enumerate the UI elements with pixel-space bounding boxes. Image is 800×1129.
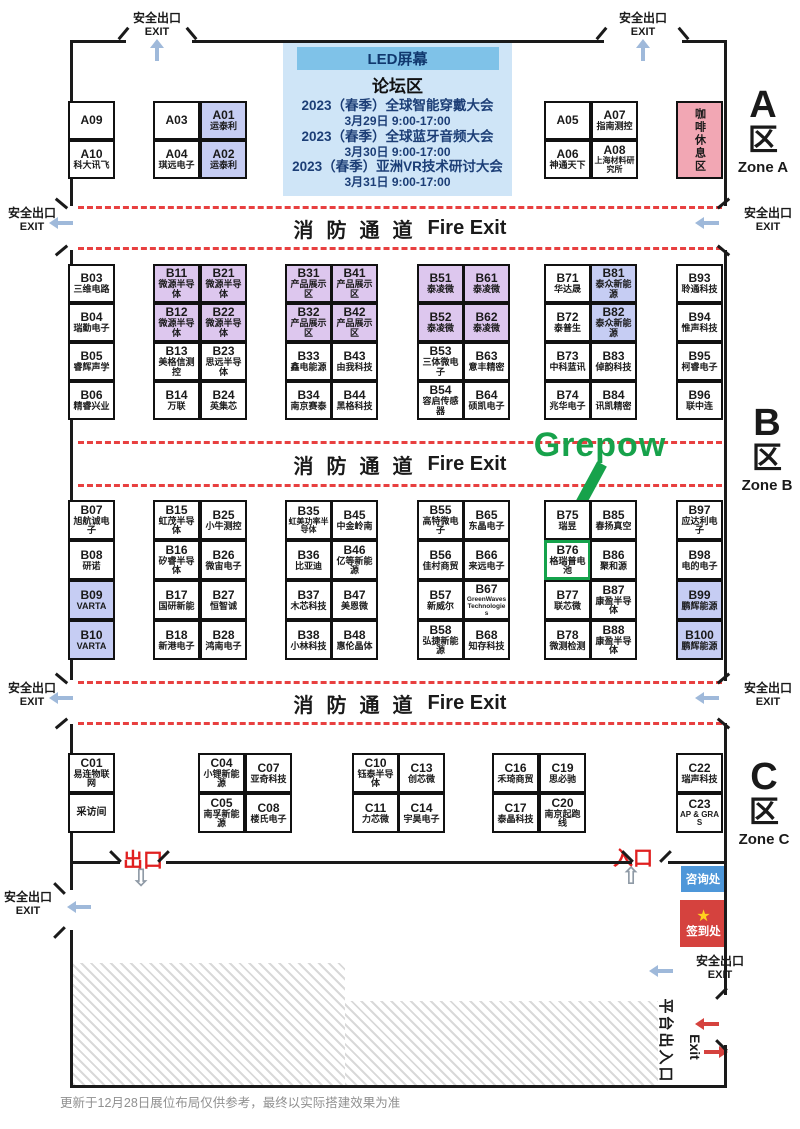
booth-id: C16 bbox=[504, 762, 526, 775]
door-tick bbox=[55, 718, 68, 730]
booth-B71: B71华达晟 bbox=[544, 264, 591, 303]
booth-A01: A01运泰利 bbox=[200, 101, 247, 140]
booth-company: 微源半导体 bbox=[156, 319, 197, 338]
booth-company: 南京起跑线 bbox=[542, 810, 583, 829]
booth-company: 应达利电子 bbox=[679, 517, 720, 536]
booth-company: 意丰精密 bbox=[468, 363, 504, 373]
booth-company: 东晶电子 bbox=[468, 522, 504, 532]
booth-id: B18 bbox=[165, 629, 187, 642]
booth-id: B99 bbox=[688, 589, 710, 602]
booth-C07: C07亚奇科技 bbox=[245, 753, 292, 793]
booth-company: 来远电子 bbox=[468, 562, 504, 572]
booth-id: B57 bbox=[429, 589, 451, 602]
booth-C08: C08楼氏电子 bbox=[245, 793, 292, 833]
fire-lane-3: 消防通道 Fire Exit bbox=[78, 681, 722, 725]
booth-company: 思必驰 bbox=[549, 775, 576, 785]
booth-company: 三维电路 bbox=[73, 285, 109, 295]
booth-id: B76 bbox=[556, 544, 578, 557]
booth-id: B37 bbox=[297, 589, 319, 602]
zone-a-label: A 区 Zone A bbox=[732, 86, 794, 175]
booth-company: 瑞勤电子 bbox=[73, 324, 109, 334]
booth-B82: B82泰众新能源 bbox=[590, 303, 637, 342]
exit-direction-arrow bbox=[58, 696, 73, 700]
booth-id: B27 bbox=[212, 589, 234, 602]
booth-B61: B61泰凌微 bbox=[463, 264, 510, 303]
booth-company: 兆华电子 bbox=[549, 402, 585, 412]
booth-company: 微源半导体 bbox=[156, 280, 197, 299]
info-desk: 咨询处 bbox=[681, 866, 725, 892]
booth-company: 电的电子 bbox=[681, 562, 717, 572]
booth-B03: B03三维电路 bbox=[68, 264, 115, 303]
entrance-up-arrow: ⇧ bbox=[621, 862, 641, 891]
safety-exit-sign: 安全出口EXIT bbox=[0, 891, 56, 917]
booth-B04: B04瑞勤电子 bbox=[68, 303, 115, 342]
booth-id: C10 bbox=[364, 757, 386, 770]
booth-company: 黑格科技 bbox=[336, 402, 372, 412]
booth-company: 康盈半导体 bbox=[593, 637, 634, 656]
safety-exit-cn: 安全出口 bbox=[692, 955, 748, 969]
booth-A07: A07指南测控 bbox=[591, 101, 638, 140]
booth-B25: B25小牛测控 bbox=[200, 500, 247, 540]
booth-company: 力芯微 bbox=[362, 815, 389, 825]
booth-B96: B96联中连 bbox=[676, 381, 723, 420]
booth-id: C07 bbox=[257, 762, 279, 775]
booth-id: B56 bbox=[429, 549, 451, 562]
booth-B06: B06精睿兴业 bbox=[68, 381, 115, 420]
booth-company: 三体微电子 bbox=[420, 358, 461, 377]
booth-B11: B11微源半导体 bbox=[153, 264, 200, 303]
booth-C14: C14宇昊电子 bbox=[398, 793, 445, 833]
booth-company: VARTA bbox=[77, 602, 107, 612]
booth-company: 运泰利 bbox=[210, 161, 237, 171]
booth-id: B16 bbox=[165, 544, 187, 557]
booth-id: B87 bbox=[602, 584, 624, 597]
booth-id: B07 bbox=[80, 504, 102, 517]
platform-hatched-area bbox=[345, 1001, 658, 1085]
booth-B97: B97应达利电子 bbox=[676, 500, 723, 540]
booth-C19: C19思必驰 bbox=[539, 753, 586, 793]
booth-id: B86 bbox=[602, 549, 624, 562]
booth-id: C11 bbox=[365, 802, 386, 815]
booth-B26: B26微宙电子 bbox=[200, 540, 247, 580]
safety-exit-sign: 安全出口EXIT bbox=[615, 12, 671, 38]
booth-id: B75 bbox=[556, 509, 578, 522]
booth-B33: B33鑫电能源 bbox=[285, 342, 332, 381]
booth-B52: B52泰凌微 bbox=[417, 303, 464, 342]
booth-id: C04 bbox=[210, 757, 232, 770]
booth-C20: C20南京起跑线 bbox=[539, 793, 586, 833]
booth-id: B08 bbox=[80, 549, 102, 562]
booth-company: 新港电子 bbox=[158, 642, 194, 652]
booth-B85: B85春扬真空 bbox=[590, 500, 637, 540]
booth-company: 弘捷新能源 bbox=[420, 637, 461, 656]
booth-company: 国研新能 bbox=[158, 602, 194, 612]
booth-id: B26 bbox=[212, 549, 234, 562]
booth-company: 矽睿半导体 bbox=[156, 557, 197, 576]
booth-A05: A05 bbox=[544, 101, 591, 140]
booth-C11: C11力芯微 bbox=[352, 793, 399, 833]
booth-B57: B57新威尔 bbox=[417, 580, 464, 620]
booth-B94: B94惟声科技 bbox=[676, 303, 723, 342]
booth-B58: B58弘捷新能源 bbox=[417, 620, 464, 660]
fire-lane-1: 消防通道 Fire Exit bbox=[78, 206, 722, 250]
booth-B72: B72泰普生 bbox=[544, 303, 591, 342]
fire-lane-label-cn: 消防通道 bbox=[294, 214, 426, 243]
coffee-rest-area: 咖啡休息区 bbox=[676, 101, 723, 179]
booth-id: B98 bbox=[688, 549, 710, 562]
booth-company: 格瑞普电池 bbox=[548, 557, 587, 576]
booth-B14: B14万联 bbox=[153, 381, 200, 420]
wall bbox=[70, 1085, 727, 1088]
booth-company: 宇昊电子 bbox=[403, 815, 439, 825]
booth-company: 运泰利 bbox=[210, 122, 237, 132]
booth-B31: B31产品展示区 bbox=[285, 264, 332, 303]
booth-B100: B100鹏辉能源 bbox=[676, 620, 723, 660]
booth-id: C05 bbox=[210, 797, 232, 810]
booth-B43: B43由我科技 bbox=[331, 342, 378, 381]
wall bbox=[70, 930, 73, 1085]
booth-id: B88 bbox=[602, 624, 624, 637]
booth-company: 旭航诚电子 bbox=[71, 517, 112, 536]
booth-company: 联芯微 bbox=[554, 602, 581, 612]
booth-B53: B53三体微电子 bbox=[417, 342, 464, 381]
door-tick bbox=[596, 27, 608, 40]
booth-id: B25 bbox=[212, 509, 234, 522]
safety-exit-cn: 安全出口 bbox=[615, 12, 671, 26]
booth-company: 创芯微 bbox=[408, 775, 435, 785]
booth-id: B45 bbox=[343, 509, 365, 522]
booth-company: 讯凯精密 bbox=[595, 402, 631, 412]
booth-company: 泰普生 bbox=[554, 324, 581, 334]
booth-A03: A03 bbox=[153, 101, 200, 140]
booth-company: 万联 bbox=[167, 402, 185, 412]
platform-exit-label-cn: 平台出入口 bbox=[659, 993, 677, 1089]
booth-B22: B22微源半导体 bbox=[200, 303, 247, 342]
safety-exit-sign: 安全出口EXIT bbox=[740, 682, 796, 708]
safety-exit-sign: 安全出口EXIT bbox=[692, 955, 748, 981]
booth-company: 泰凌微 bbox=[473, 324, 500, 334]
booth-company: 产品展示区 bbox=[334, 280, 375, 299]
safety-exit-sign: 安全出口EXIT bbox=[129, 12, 185, 38]
booth-B46: B46亿等新能源 bbox=[331, 540, 378, 580]
safety-exit-en: EXIT bbox=[740, 221, 796, 234]
fire-lane-label-cn: 消防通道 bbox=[294, 450, 426, 479]
booth-C13: C13创芯微 bbox=[398, 753, 445, 793]
booth-B37: B37木芯科技 bbox=[285, 580, 332, 620]
booth-B44: B44黑格科技 bbox=[331, 381, 378, 420]
booth-B99: B99鹏辉能源 bbox=[676, 580, 723, 620]
booth-B23: B23思远半导体 bbox=[200, 342, 247, 381]
booth-B98: B98电的电子 bbox=[676, 540, 723, 580]
booth-B55: B55高特微电子 bbox=[417, 500, 464, 540]
safety-exit-en: EXIT bbox=[0, 905, 56, 918]
platform-hatched-area bbox=[73, 963, 345, 1085]
booth-company: 亿等新能源 bbox=[334, 557, 375, 576]
exit-direction-arrow bbox=[155, 48, 159, 61]
booth-company: GreenWaves Technologies bbox=[466, 596, 507, 617]
exit-direction-arrow bbox=[704, 221, 719, 225]
booth-company: 佳村商贸 bbox=[422, 562, 458, 572]
booth-id: C17 bbox=[504, 802, 526, 815]
fire-lane-label-en: Fire Exit bbox=[428, 217, 507, 240]
booth-company: 神通天下 bbox=[549, 161, 585, 171]
wall bbox=[70, 40, 126, 43]
door-tick bbox=[186, 27, 198, 40]
safety-exit-en: EXIT bbox=[129, 26, 185, 39]
booth-id: B58 bbox=[429, 624, 451, 637]
booth-B77: B77联芯微 bbox=[544, 580, 591, 620]
booth-B56: B56佳村商贸 bbox=[417, 540, 464, 580]
booth-B41: B41产品展示区 bbox=[331, 264, 378, 303]
booth-company: 南京赛泰 bbox=[290, 402, 326, 412]
booth-C16: C16禾琦商贸 bbox=[492, 753, 539, 793]
exit-direction-arrow bbox=[76, 905, 91, 909]
booth-B64: B64硕凯电子 bbox=[463, 381, 510, 420]
booth-company: 易连物联网 bbox=[71, 770, 112, 789]
booth-company: 指南测控 bbox=[596, 122, 632, 132]
booth-B84: B84讯凯精密 bbox=[590, 381, 637, 420]
safety-exit-en: EXIT bbox=[692, 969, 748, 982]
booth-B63: B63意丰精密 bbox=[463, 342, 510, 381]
booth-B18: B18新港电子 bbox=[153, 620, 200, 660]
booth-id: C23 bbox=[688, 798, 710, 811]
booth-company: 小锂新能源 bbox=[201, 770, 242, 789]
booth-B47: B47美恩微 bbox=[331, 580, 378, 620]
booth-company: 微测检测 bbox=[549, 642, 585, 652]
booth-company: 钰泰半导体 bbox=[355, 770, 396, 789]
booth-A02: A02运泰利 bbox=[200, 140, 247, 179]
booth-company: 产品展示区 bbox=[334, 319, 375, 338]
booth-C10: C10钰泰半导体 bbox=[352, 753, 399, 793]
booth-company: 产品展示区 bbox=[288, 280, 329, 299]
booth-id: B55 bbox=[429, 504, 451, 517]
booth-B75: B75瑞昱 bbox=[544, 500, 591, 540]
safety-exit-cn: 安全出口 bbox=[0, 891, 56, 905]
booth-id: A05 bbox=[556, 114, 578, 127]
booth-company: 康盈半导体 bbox=[593, 597, 634, 616]
forum-event-1: 2023（春季）全球智能穿戴大会 3月29日 9:00-17:00 bbox=[283, 98, 512, 129]
checkin-desk: ★ 签到处 bbox=[680, 900, 727, 947]
booth-B81: B81泰众新能源 bbox=[590, 264, 637, 303]
exit-direction-arrow bbox=[704, 696, 719, 700]
booth-company: VARTA bbox=[77, 642, 107, 652]
booth-B42: B42产品展示区 bbox=[331, 303, 378, 342]
booth-company: 泰凌微 bbox=[427, 324, 454, 334]
booth-B10: B10VARTA bbox=[68, 620, 115, 660]
booth-B32: B32产品展示区 bbox=[285, 303, 332, 342]
door-tick bbox=[55, 245, 68, 257]
forum-area: LED屏幕 论坛区 2023（春季）全球智能穿戴大会 3月29日 9:00-17… bbox=[283, 43, 512, 196]
booth-company: 泰众新能源 bbox=[593, 319, 634, 338]
booth-B66: B66来远电子 bbox=[463, 540, 510, 580]
booth-id: C01 bbox=[80, 757, 102, 770]
platform-arrow-right bbox=[704, 1050, 719, 1054]
fire-lane-label-en: Fire Exit bbox=[428, 692, 507, 715]
booth-B67: B67GreenWaves Technologies bbox=[463, 580, 510, 620]
booth-B76: B76格瑞普电池 bbox=[544, 540, 591, 580]
booth-company: 容启传感器 bbox=[420, 397, 461, 416]
booth-company: 南孚新能源 bbox=[201, 810, 242, 829]
booth-company: 禾琦商贸 bbox=[497, 775, 533, 785]
booth-company: 倬韵科技 bbox=[595, 363, 631, 373]
booth-company: AP & GRAS bbox=[679, 811, 720, 828]
booth-company: 楼氏电子 bbox=[250, 815, 286, 825]
booth-company: 美格信测控 bbox=[156, 358, 197, 377]
booth-A09: A09 bbox=[68, 101, 115, 140]
booth-company: 鹏辉能源 bbox=[681, 602, 717, 612]
safety-exit-cn: 安全出口 bbox=[740, 207, 796, 221]
booth-C23: C23AP & GRAS bbox=[676, 793, 723, 833]
booth-id: B35 bbox=[297, 505, 319, 518]
booth-id: B36 bbox=[297, 549, 319, 562]
star-icon: ★ bbox=[696, 908, 710, 926]
booth-company: 比亚迪 bbox=[295, 562, 322, 572]
safety-exit-cn: 安全出口 bbox=[129, 12, 185, 26]
exit-direction-arrow bbox=[658, 969, 673, 973]
booth-B51: B51泰凌微 bbox=[417, 264, 464, 303]
booth-B38: B38小林科技 bbox=[285, 620, 332, 660]
booth-id: B47 bbox=[343, 589, 365, 602]
booth-B21: B21微源半导体 bbox=[200, 264, 247, 303]
booth-B16: B16矽睿半导体 bbox=[153, 540, 200, 580]
wall bbox=[192, 40, 604, 43]
forum-event-2: 2023（春季）全球蓝牙音频大会 3月30日 9:00-17:00 bbox=[283, 129, 512, 160]
booth-B35: B35虹美功率半导体 bbox=[285, 500, 332, 540]
booth-company: 研诺 bbox=[82, 562, 100, 572]
booth-company: 新威尔 bbox=[427, 602, 454, 612]
booth-company: 美恩微 bbox=[341, 602, 368, 612]
booth-company: 聚和源 bbox=[600, 562, 627, 572]
booth-company: 小林科技 bbox=[290, 642, 326, 652]
booth-B09: B09VARTA bbox=[68, 580, 115, 620]
fire-lane-label-cn: 消防通道 bbox=[294, 689, 426, 718]
booth-B17: B17国研新能 bbox=[153, 580, 200, 620]
led-screen-label: LED屏幕 bbox=[297, 47, 499, 70]
booth-B48: B48惠伦晶体 bbox=[331, 620, 378, 660]
booth-company: 泰晶科技 bbox=[497, 815, 533, 825]
platform-exit-label-en: Exit bbox=[685, 1025, 703, 1069]
booth-id: B15 bbox=[165, 504, 187, 517]
booth-company: 华达晟 bbox=[554, 285, 581, 295]
wall bbox=[724, 40, 727, 206]
safety-exit-en: EXIT bbox=[740, 696, 796, 709]
booth-B28: B28鸿南电子 bbox=[200, 620, 247, 660]
forum-title: 论坛区 bbox=[283, 72, 512, 97]
booth-company: 睿辉声学 bbox=[73, 363, 109, 373]
booth-B24: B24英集芯 bbox=[200, 381, 247, 420]
booth-B87: B87康盈半导体 bbox=[590, 580, 637, 620]
booth-id: B78 bbox=[556, 629, 578, 642]
booth-id: A09 bbox=[80, 114, 102, 127]
booth-B34: B34南京赛泰 bbox=[285, 381, 332, 420]
door-tick bbox=[678, 27, 690, 40]
door-tick bbox=[53, 926, 66, 939]
booth-company: 亚奇科技 bbox=[250, 775, 286, 785]
fire-lane-label-en: Fire Exit bbox=[428, 453, 507, 476]
booth-B12: B12微源半导体 bbox=[153, 303, 200, 342]
booth-company: 知存科技 bbox=[468, 642, 504, 652]
booth-company: 惟声科技 bbox=[681, 324, 717, 334]
booth-company: 鹏辉能源 bbox=[681, 642, 717, 652]
booth-B86: B86聚和源 bbox=[590, 540, 637, 580]
booth-id: C13 bbox=[410, 762, 432, 775]
booth-company: 中金岭南 bbox=[336, 522, 372, 532]
booth-B62: B62泰凌微 bbox=[463, 303, 510, 342]
booth-id: B38 bbox=[297, 629, 319, 642]
booth-company: 瑞声科技 bbox=[681, 775, 717, 785]
booth-id: B97 bbox=[688, 504, 710, 517]
booth-B45: B45中金岭南 bbox=[331, 500, 378, 540]
platform-arrow-left bbox=[704, 1022, 719, 1026]
booth-B65: B65东晶电子 bbox=[463, 500, 510, 540]
booth-C05: C05南孚新能源 bbox=[198, 793, 245, 833]
booth-B54: B54容启传感器 bbox=[417, 381, 464, 420]
safety-exit-cn: 安全出口 bbox=[740, 682, 796, 696]
booth-id: B28 bbox=[212, 629, 234, 642]
wall bbox=[682, 40, 727, 43]
booth-company: 瑞昱 bbox=[558, 522, 576, 532]
booth-B74: B74兆华电子 bbox=[544, 381, 591, 420]
booth-company: 虹美功率半导体 bbox=[288, 518, 329, 535]
booth-company: 采访间 bbox=[77, 808, 107, 819]
booth-company: 联中连 bbox=[686, 402, 713, 412]
booth-B93: B93聆通科技 bbox=[676, 264, 723, 303]
booth-company: 泰凌微 bbox=[427, 285, 454, 295]
wall bbox=[72, 861, 120, 864]
zone-b-label: B 区 Zone B bbox=[738, 404, 796, 493]
booth-company: 小牛测控 bbox=[205, 522, 241, 532]
booth-company: 聆通科技 bbox=[681, 285, 717, 295]
booth-id: C14 bbox=[410, 802, 432, 815]
booth-company: 英集芯 bbox=[210, 402, 237, 412]
booth-company: 泰众新能源 bbox=[593, 280, 634, 299]
booth-B36: B36比亚迪 bbox=[285, 540, 332, 580]
booth-A04: A04琪远电子 bbox=[153, 140, 200, 179]
booth-company: 虹茂半导体 bbox=[156, 517, 197, 536]
booth-id: B09 bbox=[80, 589, 102, 602]
booth-id: C22 bbox=[688, 762, 710, 775]
booth-采访间: 采访间 bbox=[68, 793, 115, 833]
booth-company: 惠伦晶体 bbox=[336, 642, 372, 652]
booth-B95: B95柯睿电子 bbox=[676, 342, 723, 381]
safety-exit-sign: 安全出口EXIT bbox=[740, 207, 796, 233]
booth-company: 产品展示区 bbox=[288, 319, 329, 338]
booth-A08: A08上海材料研究所 bbox=[591, 140, 638, 179]
booth-B05: B05睿辉声学 bbox=[68, 342, 115, 381]
booth-company: 鑫电能源 bbox=[290, 363, 326, 373]
booth-company: 思远半导体 bbox=[203, 358, 244, 377]
booth-company: 硕凯电子 bbox=[468, 402, 504, 412]
booth-id: B65 bbox=[475, 509, 497, 522]
wall bbox=[166, 861, 632, 864]
booth-company: 木芯科技 bbox=[290, 602, 326, 612]
safety-exit-en: EXIT bbox=[615, 26, 671, 39]
booth-id: C08 bbox=[257, 802, 279, 815]
exit-down-arrow: ⇩ bbox=[131, 864, 151, 893]
booth-company: 春扬真空 bbox=[595, 522, 631, 532]
booth-id: B48 bbox=[343, 629, 365, 642]
booth-company: 琪远电子 bbox=[158, 161, 194, 171]
booth-B15: B15虹茂半导体 bbox=[153, 500, 200, 540]
booth-id: A03 bbox=[165, 114, 187, 127]
booth-company: 中科蓝讯 bbox=[549, 363, 585, 373]
booth-company: 微源半导体 bbox=[203, 280, 244, 299]
booth-id: C20 bbox=[551, 797, 573, 810]
booth-B83: B83倬韵科技 bbox=[590, 342, 637, 381]
zone-c-label: C 区 Zone C bbox=[734, 758, 794, 847]
booth-B07: B07旭航诚电子 bbox=[68, 500, 115, 540]
booth-id: B85 bbox=[602, 509, 624, 522]
